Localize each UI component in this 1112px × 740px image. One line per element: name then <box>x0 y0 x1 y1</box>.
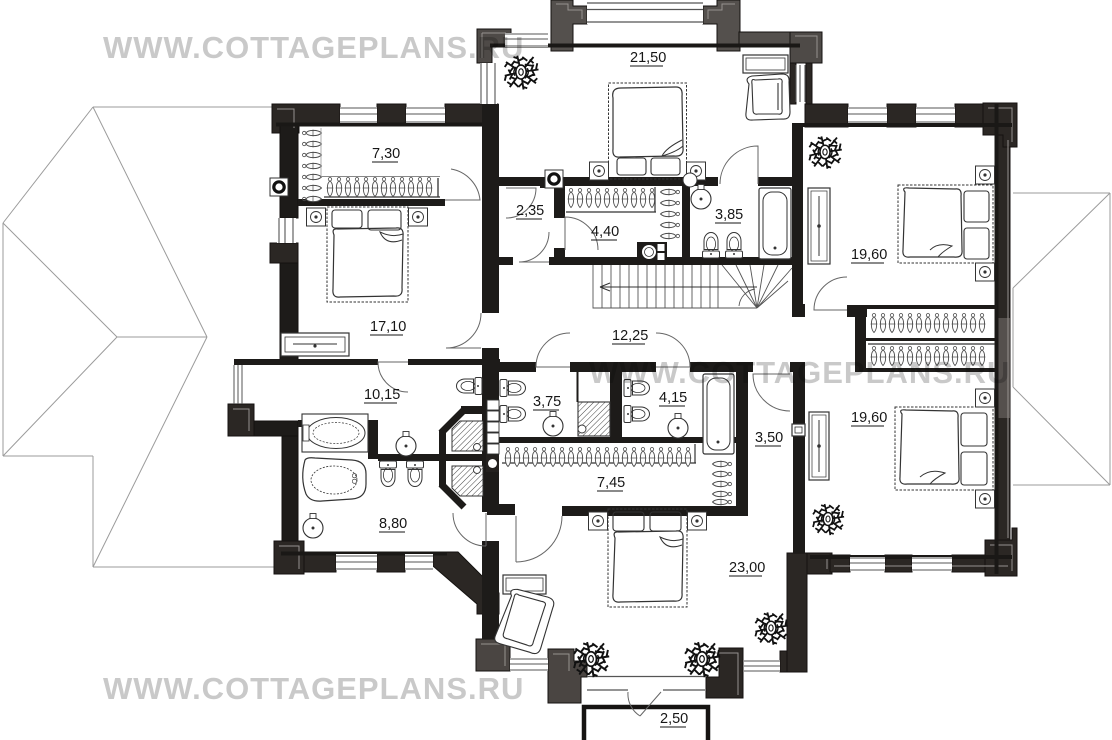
svg-text:19,60: 19,60 <box>851 247 887 263</box>
svg-text:WWW.COTTAGEPLANS.RU: WWW.COTTAGEPLANS.RU <box>589 355 1010 390</box>
svg-text:3,75: 3,75 <box>533 394 561 410</box>
svg-text:2,35: 2,35 <box>516 203 544 219</box>
svg-text:21,50: 21,50 <box>630 50 666 66</box>
svg-text:23,00: 23,00 <box>729 560 765 576</box>
svg-text:3,50: 3,50 <box>755 430 783 446</box>
svg-text:8,80: 8,80 <box>379 516 407 532</box>
svg-text:WWW.COTTAGEPLANS.RU: WWW.COTTAGEPLANS.RU <box>103 30 524 65</box>
svg-text:WWW.COTTAGEPLANS.RU: WWW.COTTAGEPLANS.RU <box>103 671 524 706</box>
svg-text:4,40: 4,40 <box>591 224 619 240</box>
svg-text:12,25: 12,25 <box>612 328 648 344</box>
svg-text:OO: OO <box>350 473 357 484</box>
svg-text:7,30: 7,30 <box>372 146 400 162</box>
svg-text:4,15: 4,15 <box>659 390 687 406</box>
svg-text:19,60: 19,60 <box>851 410 887 426</box>
svg-text:7,45: 7,45 <box>597 475 625 491</box>
svg-text:2,50: 2,50 <box>660 711 688 727</box>
svg-text:17,10: 17,10 <box>370 319 406 335</box>
svg-text:10,15: 10,15 <box>364 387 400 403</box>
svg-text:3,85: 3,85 <box>715 207 743 223</box>
